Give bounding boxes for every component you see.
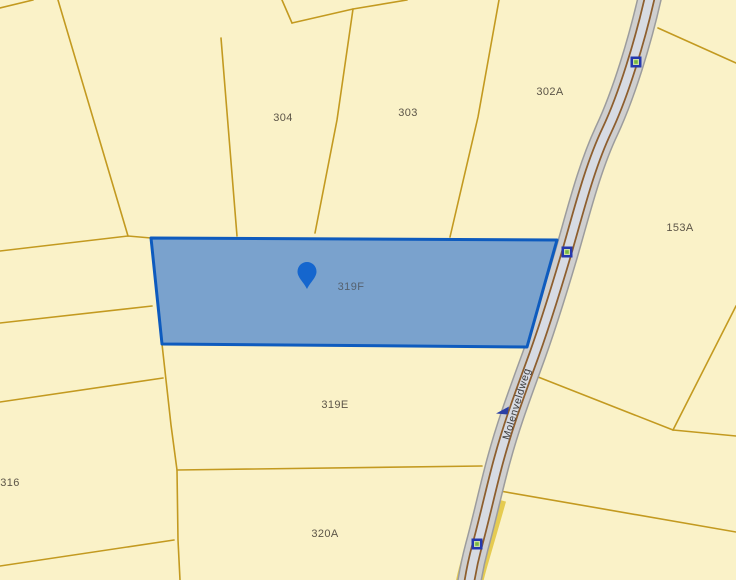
boundary-point-marker-icon [472, 539, 483, 550]
boundary-point-marker-icon [631, 57, 642, 68]
parcel-320a[interactable] [177, 466, 478, 580]
cadastral-map[interactable]: 304 303 302A 153A 319F 319E 320A 316 Mol… [0, 0, 736, 580]
parcel-319f-selected[interactable] [151, 238, 557, 347]
parcel-319e[interactable] [162, 344, 527, 470]
boundary-point-marker-icon [562, 247, 573, 258]
parcel-316[interactable] [0, 378, 177, 566]
